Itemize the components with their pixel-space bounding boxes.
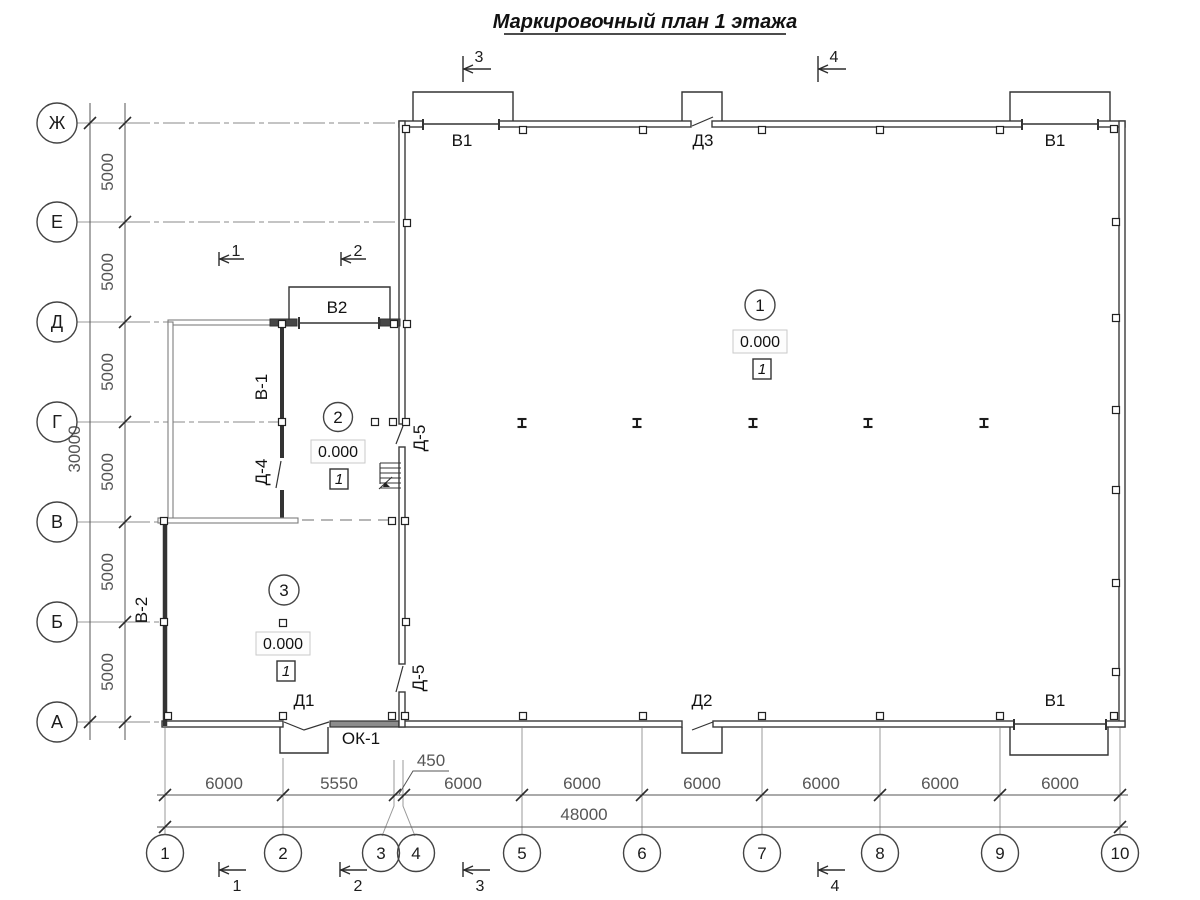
row-axis-label: Б [51, 612, 63, 632]
drawing-page: Маркировочный план 1 этажа [0, 0, 1200, 900]
door-threshold [284, 722, 329, 730]
dim-label-450: 450 [417, 751, 445, 770]
dim-label: 6000 [205, 774, 243, 793]
row-axis-label: А [51, 712, 63, 732]
row-axis-label: Г [52, 412, 62, 432]
dim-label: 5000 [98, 253, 117, 291]
section-mark-mid-2: 2 [341, 243, 366, 266]
col-axis-label: 7 [757, 844, 766, 863]
door-canopy [682, 92, 722, 121]
section-mark-top-4: 4 [818, 49, 846, 82]
row-axis-label: Д [51, 312, 63, 332]
door-swing-line [692, 117, 713, 126]
dim-total-label: 48000 [560, 805, 607, 824]
section-number: 4 [831, 878, 840, 895]
room-marker-3: 3 0.000 1 [256, 575, 310, 681]
room-elevation: 0.000 [263, 636, 303, 653]
section-number: 1 [232, 243, 241, 260]
porch-rect [1010, 727, 1108, 755]
steel-columns [518, 419, 989, 427]
door-label: Д2 [692, 691, 713, 710]
page-title: Маркировочный план 1 этажа [493, 11, 798, 33]
dim-label: 6000 [802, 774, 840, 793]
window-label: ОК-1 [342, 729, 380, 748]
room-elevation: 0.000 [318, 444, 358, 461]
section-marks: 3 4 1 2 1 2 3 [219, 49, 846, 895]
door-label: Д-4 [252, 459, 271, 486]
stairs [379, 463, 401, 489]
room-number: 3 [279, 581, 288, 600]
section-mark-bot-4: 4 [818, 862, 845, 895]
col-axis-bubbles: 1 2 3 4 5 6 7 8 9 10 [147, 835, 1139, 872]
col-axis-label: 5 [517, 844, 526, 863]
column-markers [161, 126, 1120, 720]
section-mark-mid-1: 1 [219, 243, 244, 266]
dim-label: 6000 [683, 774, 721, 793]
section-number: 2 [354, 243, 363, 260]
dim-label: 6000 [1041, 774, 1079, 793]
drawing-title: Маркировочный план 1 этажа [493, 11, 798, 34]
col-axis-label: 8 [875, 844, 884, 863]
gate-label: В1 [1045, 131, 1066, 150]
room-elevation: 0.000 [740, 334, 780, 351]
gate-label: В-1 [252, 374, 271, 400]
gate-label: В-2 [132, 597, 151, 623]
porch-rect [280, 727, 328, 753]
window-ok1 [330, 721, 399, 727]
door-swing-line [396, 426, 403, 444]
col-axis-lines [165, 728, 1120, 836]
col-axis-label: 10 [1111, 844, 1130, 863]
door-label: Д-5 [409, 665, 428, 692]
section-number: 2 [354, 878, 363, 895]
section-mark-bot-3: 3 [463, 862, 490, 895]
dim-label: 5000 [98, 353, 117, 391]
dim-label: 6000 [444, 774, 482, 793]
dim-label: 5000 [98, 553, 117, 591]
row-axis-label: Ж [49, 113, 66, 133]
door-label: Д-5 [410, 425, 429, 452]
dim-label: 6000 [563, 774, 601, 793]
dim-label: 5000 [98, 153, 117, 191]
door-label: Д1 [294, 691, 315, 710]
room-marker-1: 1 0.000 1 [733, 290, 787, 379]
dim-label: 5000 [98, 453, 117, 491]
door-swing-line [692, 722, 713, 730]
row-axis-label: В [51, 512, 63, 532]
room-finish-type: 1 [282, 663, 290, 680]
section-mark-bot-1: 1 [219, 862, 246, 895]
floor-plan-svg: Маркировочный план 1 этажа [0, 0, 1200, 900]
col-axis-label: 2 [278, 844, 287, 863]
room-number: 2 [333, 408, 342, 427]
room-finish-type: 1 [758, 361, 766, 378]
section-number: 3 [475, 49, 484, 66]
gate-canopy [413, 92, 513, 121]
col-axis-label: 9 [995, 844, 1004, 863]
door-label: Д3 [693, 131, 714, 150]
gate-canopy [1010, 92, 1110, 121]
section-mark-bot-2: 2 [340, 862, 367, 895]
section-number: 1 [233, 878, 242, 895]
gate-label: В2 [327, 298, 348, 317]
porch-rect [682, 727, 722, 753]
room-number: 1 [755, 296, 764, 315]
dim-label: 5550 [320, 774, 358, 793]
row-axis-label: Е [51, 212, 63, 232]
gate-label: В1 [1045, 691, 1066, 710]
col-axis-label: 1 [160, 844, 169, 863]
section-mark-top-3: 3 [463, 49, 491, 82]
door-swing-line [396, 666, 403, 692]
col-axis-label: 4 [411, 844, 420, 863]
room-marker-2: 2 0.000 1 [311, 403, 365, 490]
col-axis-label: 6 [637, 844, 646, 863]
row-axis-bubbles: Ж Е Д Г В Б А [37, 103, 77, 742]
section-number: 3 [476, 878, 485, 895]
room-finish-type: 1 [335, 471, 343, 488]
section-number: 4 [830, 49, 839, 66]
col-axis-label: 3 [376, 844, 385, 863]
door-swing-line [276, 461, 281, 488]
gate-label: В1 [452, 131, 473, 150]
dim-label: 5000 [98, 653, 117, 691]
dim-label: 6000 [921, 774, 959, 793]
